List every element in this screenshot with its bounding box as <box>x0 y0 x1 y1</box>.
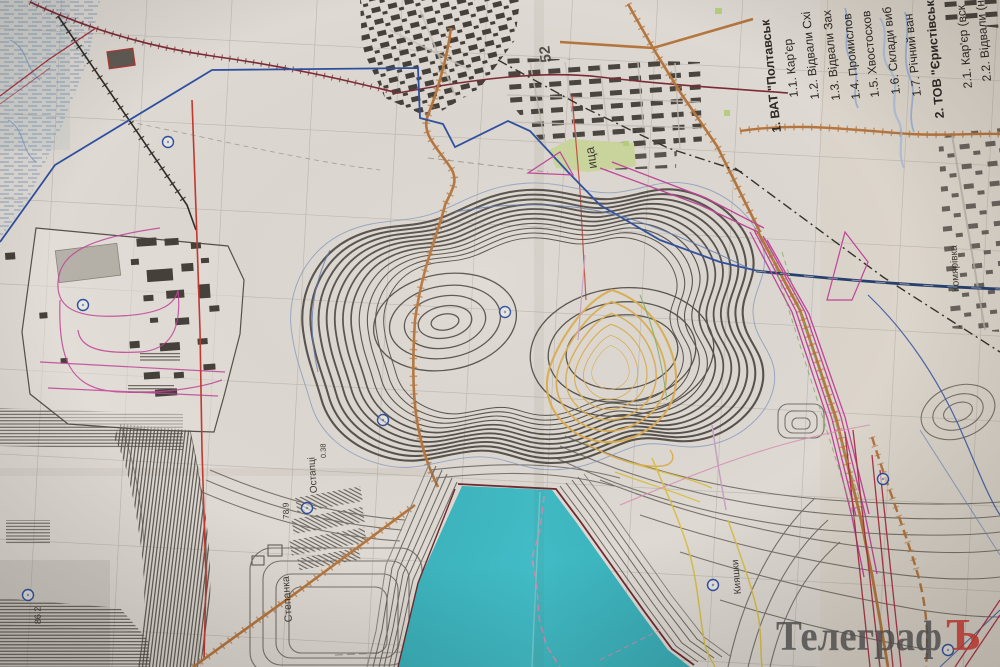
watermark-main: Телеграф <box>776 614 942 660</box>
photo-shading <box>0 0 1000 667</box>
map-photo-root: 52 ица Остапці 0.38 Степанка Кияшки Комя… <box>0 0 1000 667</box>
vignette-overlay <box>0 0 1000 667</box>
watermark-suffix: Ъ <box>946 609 981 660</box>
watermark: Телеграф Ъ <box>776 609 981 660</box>
